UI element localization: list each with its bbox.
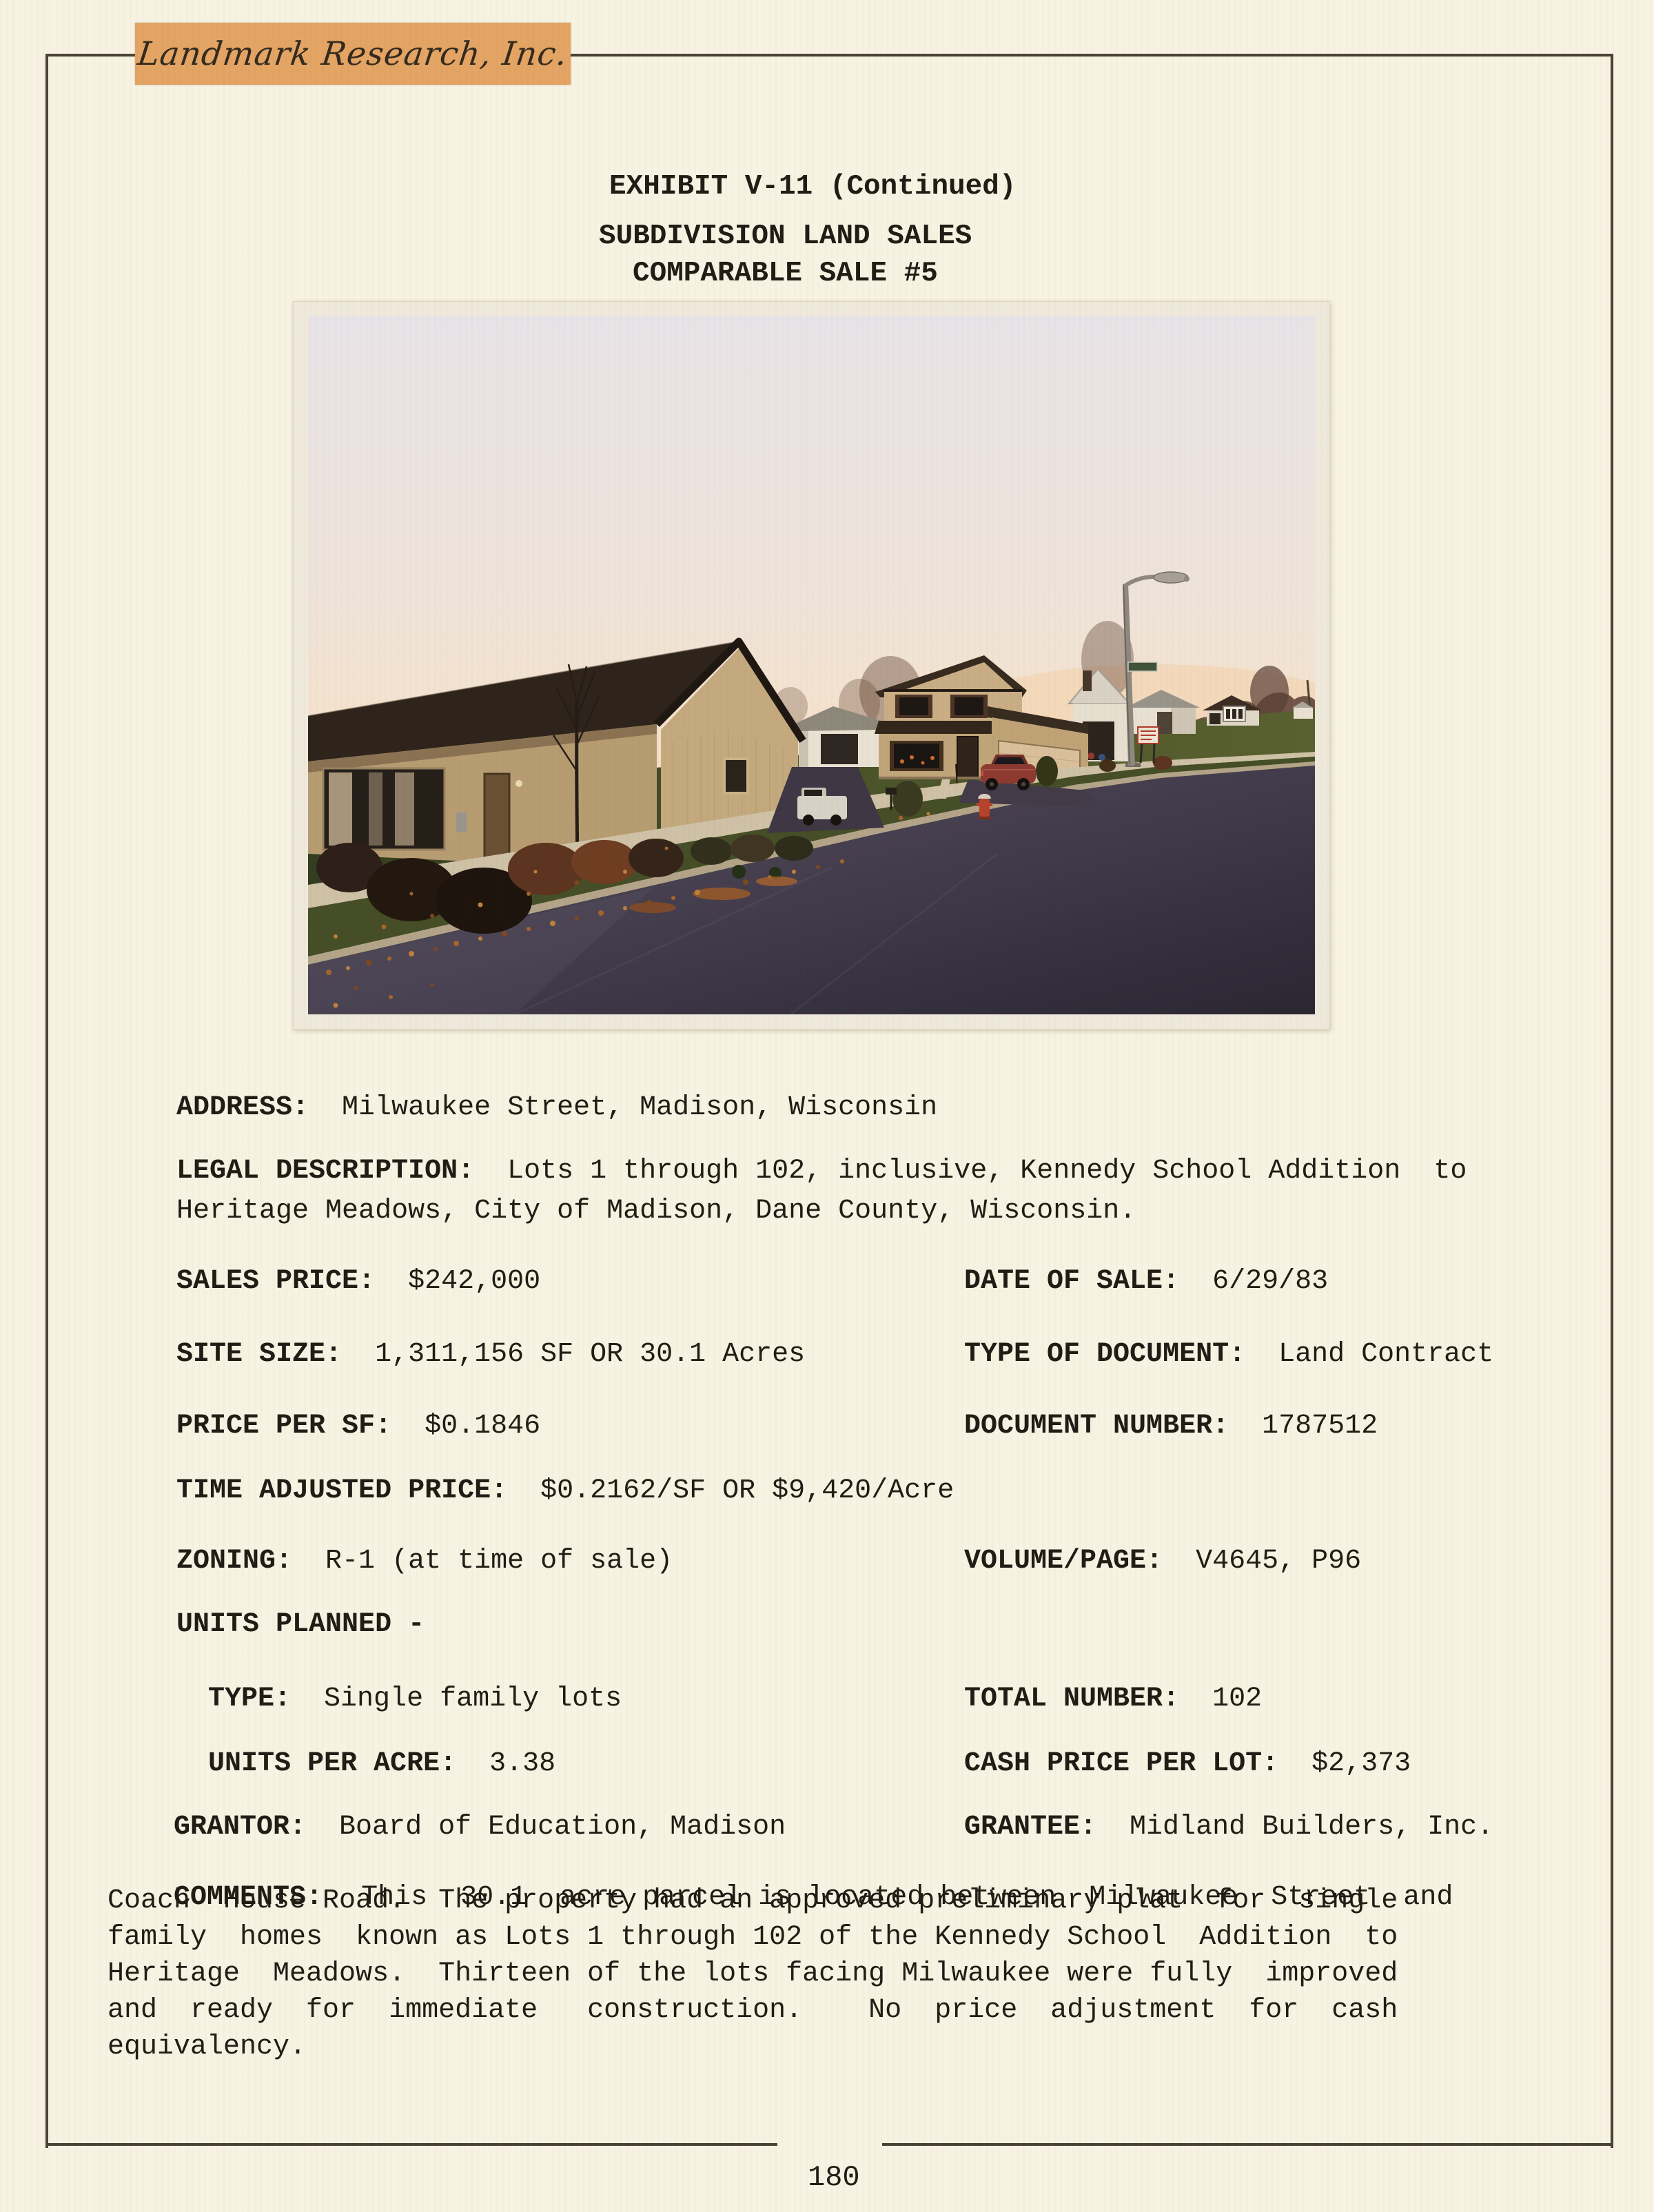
date-of-sale-value: 6/29/83 <box>1212 1266 1328 1297</box>
units-per-acre-label: UNITS PER ACRE: <box>208 1748 456 1779</box>
legal-description-value-line2: Heritage Meadows, City of Madison, Dane … <box>176 1196 1136 1227</box>
page-number: 180 <box>808 2161 860 2194</box>
field-document-number: DOCUMENT NUMBER:1787512 <box>898 1377 1378 1476</box>
date-of-sale-label: DATE OF SALE: <box>964 1266 1179 1297</box>
field-volume-page: VOLUME/PAGE:V4645, P96 <box>898 1512 1361 1611</box>
zoning-value: R-1 (at time of sale) <box>325 1546 673 1577</box>
site-size-value: 1,311,156 SF OR 30.1 Acres <box>375 1339 805 1370</box>
units-per-acre-value: 3.38 <box>489 1748 555 1779</box>
page-border-bottom-left <box>45 2143 777 2146</box>
comments-line-6: equivalency. <box>108 2031 306 2064</box>
volume-page-value: V4645, P96 <box>1196 1546 1361 1577</box>
company-logo-text: Landmark Research, Inc. <box>136 35 570 73</box>
sales-price-value: $242,000 <box>408 1266 540 1297</box>
comments-line-3: family homes known as Lots 1 through 102… <box>108 1921 1398 1954</box>
type-of-document-label: TYPE OF DOCUMENT: <box>964 1339 1245 1370</box>
exhibit-subtitle: SUBDIVISION LAND SALES <box>599 221 972 252</box>
sales-price-label: SALES PRICE: <box>176 1266 375 1297</box>
grantor-value: Board of Education, Madison <box>339 1812 786 1843</box>
volume-page-label: VOLUME/PAGE: <box>964 1546 1163 1577</box>
document-number-value: 1787512 <box>1262 1411 1378 1442</box>
document-number-label: DOCUMENT NUMBER: <box>964 1411 1229 1442</box>
grantor-label: GRANTOR: <box>174 1812 306 1843</box>
company-logo: Landmark Research, Inc. <box>135 23 571 85</box>
total-number-label: TOTAL NUMBER: <box>964 1683 1179 1714</box>
time-adjusted-price-value: $0.2162/SF OR $9,420/Acre <box>540 1475 954 1506</box>
exhibit-title: EXHIBIT V-11 (Continued) <box>609 171 1017 203</box>
cash-price-per-lot-value: $2,373 <box>1311 1748 1411 1779</box>
address-label: ADDRESS: <box>176 1092 309 1123</box>
unit-type-label: TYPE: <box>208 1683 291 1714</box>
unit-type-value: Single family lots <box>324 1683 622 1714</box>
comparable-sale-title: COMPARABLE SALE #5 <box>633 258 938 289</box>
property-photo <box>308 316 1315 1014</box>
comments-line-5: and ready for immediate construction. No… <box>108 1994 1398 2027</box>
property-photo-print <box>293 301 1330 1030</box>
cash-price-per-lot-label: CASH PRICE PER LOT: <box>964 1748 1278 1779</box>
site-size-label: SITE SIZE: <box>176 1339 342 1370</box>
zoning-label: ZONING: <box>176 1546 292 1577</box>
time-adjusted-price-label: TIME ADJUSTED PRICE: <box>176 1475 507 1506</box>
total-number-value: 102 <box>1212 1683 1262 1714</box>
type-of-document-value: Land Contract <box>1278 1339 1493 1370</box>
grantee-label: GRANTEE: <box>964 1812 1096 1843</box>
units-planned-label: UNITS PLANNED - <box>176 1609 425 1640</box>
report-page: Landmark Research, Inc. EXHIBIT V-11 (Co… <box>0 0 1654 2212</box>
price-per-sf-value: $0.1846 <box>425 1411 540 1442</box>
grantee-value: Midland Builders, Inc. <box>1130 1812 1493 1843</box>
address-value: Milwaukee Street, Madison, Wisconsin <box>342 1092 937 1123</box>
comments-line-2: Coach House Road. The property had an ap… <box>108 1885 1398 1918</box>
page-border-bottom-right <box>882 2143 1611 2146</box>
comments-line-4: Heritage Meadows. Thirteen of the lots f… <box>108 1958 1398 1991</box>
price-per-sf-label: PRICE PER SF: <box>176 1411 391 1442</box>
